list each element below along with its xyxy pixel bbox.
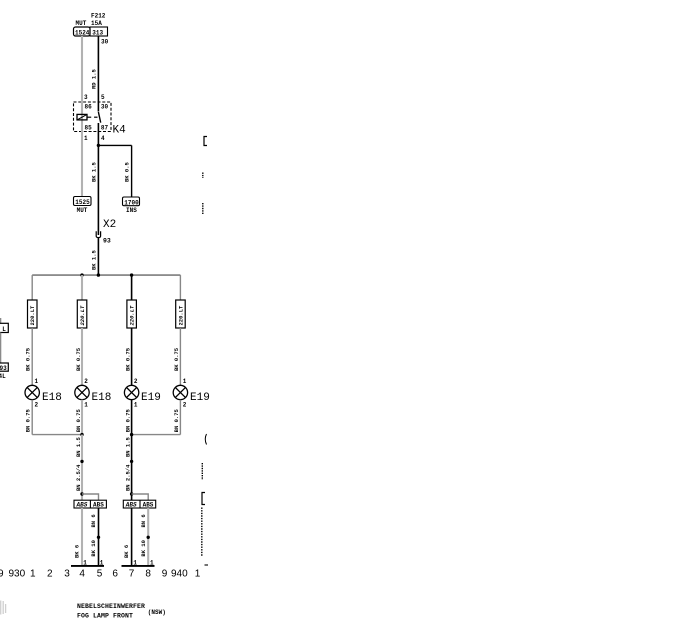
svg-text:BN 0.75: BN 0.75 bbox=[24, 408, 31, 432]
svg-text:MUT: MUT bbox=[77, 207, 88, 214]
svg-text:9: 9 bbox=[0, 569, 4, 580]
svg-text:30: 30 bbox=[101, 39, 109, 46]
svg-text:BK 0.75: BK 0.75 bbox=[75, 347, 82, 371]
svg-text:1700: 1700 bbox=[124, 199, 139, 206]
svg-text:E18: E18 bbox=[42, 392, 62, 404]
svg-text:K4: K4 bbox=[113, 125, 127, 137]
svg-text:BN 0.75: BN 0.75 bbox=[173, 408, 180, 432]
svg-text:BN 2.5/4: BN 2.5/4 bbox=[75, 464, 82, 491]
svg-text:2: 2 bbox=[134, 378, 138, 385]
svg-text:BN 1.5: BN 1.5 bbox=[75, 436, 82, 457]
svg-text:BN 1.5: BN 1.5 bbox=[124, 436, 131, 457]
svg-text:30: 30 bbox=[101, 104, 109, 111]
svg-text:220.LT: 220.LT bbox=[177, 305, 184, 326]
svg-text:940: 940 bbox=[171, 569, 188, 580]
svg-text:BN 6: BN 6 bbox=[140, 514, 147, 527]
svg-text:2: 2 bbox=[183, 402, 187, 409]
svg-text:8: 8 bbox=[145, 569, 151, 580]
svg-text:930: 930 bbox=[9, 569, 26, 580]
svg-text:L: L bbox=[2, 326, 6, 333]
svg-text:1: 1 bbox=[195, 569, 201, 580]
svg-text:NEBELSCHEINWERFER: NEBELSCHEINWERFER bbox=[77, 603, 145, 610]
svg-text:3: 3 bbox=[84, 94, 88, 101]
svg-text:93: 93 bbox=[103, 238, 111, 245]
svg-text:1: 1 bbox=[183, 378, 187, 385]
svg-text:BN 2.5/4: BN 2.5/4 bbox=[124, 464, 131, 491]
svg-text:F212: F212 bbox=[91, 12, 106, 19]
svg-text:86: 86 bbox=[85, 104, 93, 111]
svg-text:85: 85 bbox=[85, 125, 93, 132]
svg-text:2: 2 bbox=[47, 569, 53, 580]
svg-text:ABS: ABS bbox=[76, 502, 88, 509]
svg-text:BK 1.5: BK 1.5 bbox=[91, 161, 98, 182]
svg-text:RD 1.5: RD 1.5 bbox=[91, 68, 98, 89]
svg-text:15A: 15A bbox=[91, 20, 102, 27]
svg-text:BN 6: BN 6 bbox=[90, 514, 97, 527]
svg-text:9: 9 bbox=[162, 569, 168, 580]
svg-text:BK 0.75: BK 0.75 bbox=[173, 347, 180, 371]
svg-text:X2: X2 bbox=[103, 219, 116, 231]
svg-text:1525: 1525 bbox=[75, 199, 90, 206]
svg-text:BK 6: BK 6 bbox=[123, 545, 130, 558]
svg-text:BK 6: BK 6 bbox=[74, 545, 81, 558]
svg-text:4: 4 bbox=[101, 135, 105, 142]
svg-text:BK 10: BK 10 bbox=[140, 540, 147, 557]
svg-text:3: 3 bbox=[64, 569, 70, 580]
svg-text:1: 1 bbox=[84, 402, 88, 409]
svg-text:93: 93 bbox=[0, 365, 7, 372]
svg-text:220.LT: 220.LT bbox=[29, 305, 36, 326]
svg-text:1: 1 bbox=[30, 569, 36, 580]
svg-text:4: 4 bbox=[79, 569, 85, 580]
svg-text:220.LT: 220.LT bbox=[129, 305, 136, 326]
svg-text:BN 0.75: BN 0.75 bbox=[124, 408, 131, 432]
svg-text:4L: 4L bbox=[0, 373, 6, 380]
svg-text:E18: E18 bbox=[92, 392, 112, 404]
svg-text:313: 313 bbox=[92, 29, 103, 36]
svg-text:2: 2 bbox=[84, 378, 88, 385]
svg-text:(NSW): (NSW) bbox=[148, 609, 166, 616]
svg-text:MUT: MUT bbox=[76, 20, 87, 27]
svg-text:1: 1 bbox=[35, 378, 39, 385]
svg-text:220.LT: 220.LT bbox=[79, 305, 86, 326]
svg-text:1524: 1524 bbox=[75, 29, 90, 36]
svg-text:E19: E19 bbox=[141, 392, 161, 404]
svg-text:6: 6 bbox=[112, 569, 118, 580]
svg-text:BK 0.75: BK 0.75 bbox=[124, 347, 131, 371]
svg-text:BK 0.5: BK 0.5 bbox=[124, 161, 131, 182]
svg-text:BN 0.75: BN 0.75 bbox=[75, 408, 82, 432]
svg-text:INS: INS bbox=[126, 207, 137, 214]
svg-text:BK 0.75: BK 0.75 bbox=[24, 347, 31, 371]
svg-text:FOG LAMP FRONT: FOG LAMP FRONT bbox=[77, 612, 133, 619]
svg-text:BK 1.5: BK 1.5 bbox=[91, 249, 98, 270]
svg-text:ABS: ABS bbox=[125, 502, 137, 509]
svg-text:1: 1 bbox=[84, 135, 88, 142]
svg-text:ABS: ABS bbox=[143, 502, 154, 509]
svg-text:7: 7 bbox=[129, 569, 135, 580]
svg-text:BK 10: BK 10 bbox=[90, 540, 97, 557]
svg-text:ABS: ABS bbox=[93, 502, 104, 509]
svg-text:1: 1 bbox=[134, 402, 138, 409]
svg-text:5: 5 bbox=[97, 569, 103, 580]
svg-text:5: 5 bbox=[101, 94, 105, 101]
svg-text:2: 2 bbox=[35, 402, 39, 409]
svg-text:87: 87 bbox=[101, 125, 109, 132]
svg-text:E19: E19 bbox=[190, 392, 210, 404]
